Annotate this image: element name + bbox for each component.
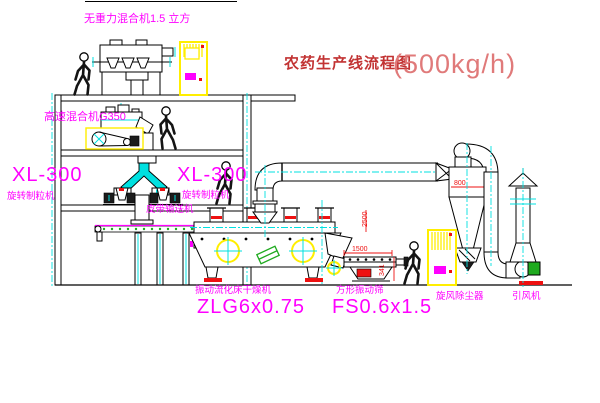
label-high-speed-mixer: 高速混合机G350 xyxy=(44,109,126,123)
label-fluid-bed-name: 振动流化床干燥机 xyxy=(195,284,272,296)
control-cabinet-right xyxy=(428,230,456,285)
label-sieve-model: FS0.6x1.5 xyxy=(332,296,432,318)
label-fan: 引风机 xyxy=(512,290,541,302)
dim-cyclone-width: 800 xyxy=(454,180,466,187)
diagram-page: 农药生产线流程图 (500kg/h) 无重力混合机1.5 立方 高速混合机G35… xyxy=(0,0,600,403)
granulator-right xyxy=(145,188,183,205)
diagram-capacity: (500kg/h) xyxy=(393,49,516,79)
dim-sieve-height: 341 xyxy=(379,264,386,276)
induced-draft-fan xyxy=(506,261,543,285)
sieve-motor xyxy=(357,269,371,277)
gravity-mixer xyxy=(92,40,175,95)
label-gravity-mixer: 无重力混合机1.5 立方 xyxy=(84,11,190,25)
cabinet-indicator xyxy=(185,73,196,80)
cabinet-indicator xyxy=(199,78,202,81)
person-figure xyxy=(161,107,176,149)
cabinet-indicator xyxy=(449,233,452,236)
person-figure xyxy=(75,53,90,95)
label-granulator-right-name: 旋转制粒机 xyxy=(182,189,230,201)
dim-bed-outlet-height: 2500 xyxy=(362,211,369,227)
control-cabinet-top xyxy=(180,42,207,95)
vibrating-sieve xyxy=(344,250,408,281)
bed-port xyxy=(315,208,334,222)
dim-sieve-length: 1500 xyxy=(352,246,368,253)
label-granulator-left-name: 旋转制粒机 xyxy=(7,190,55,202)
cabinet-indicator xyxy=(434,266,446,274)
label-sieve-name: 方形振动筛 xyxy=(336,284,384,296)
bed-port xyxy=(207,208,226,222)
label-granulator-right-model: XL-300 xyxy=(177,164,248,186)
label-belt-conveyor: 皮带输送机 xyxy=(146,203,194,215)
bed-port xyxy=(281,208,300,222)
person-figure xyxy=(405,242,420,284)
cabinet-indicator xyxy=(201,45,204,48)
label-fluid-bed-model: ZLG6x0.75 xyxy=(197,296,305,318)
label-cyclone: 旋风除尘器 xyxy=(436,290,484,302)
label-granulator-left-model: XL-300 xyxy=(12,164,83,186)
cabinet-indicator xyxy=(449,270,452,273)
diagram-canvas: 农药生产线流程图 (500kg/h) 无重力混合机1.5 立方 高速混合机G35… xyxy=(0,0,600,403)
